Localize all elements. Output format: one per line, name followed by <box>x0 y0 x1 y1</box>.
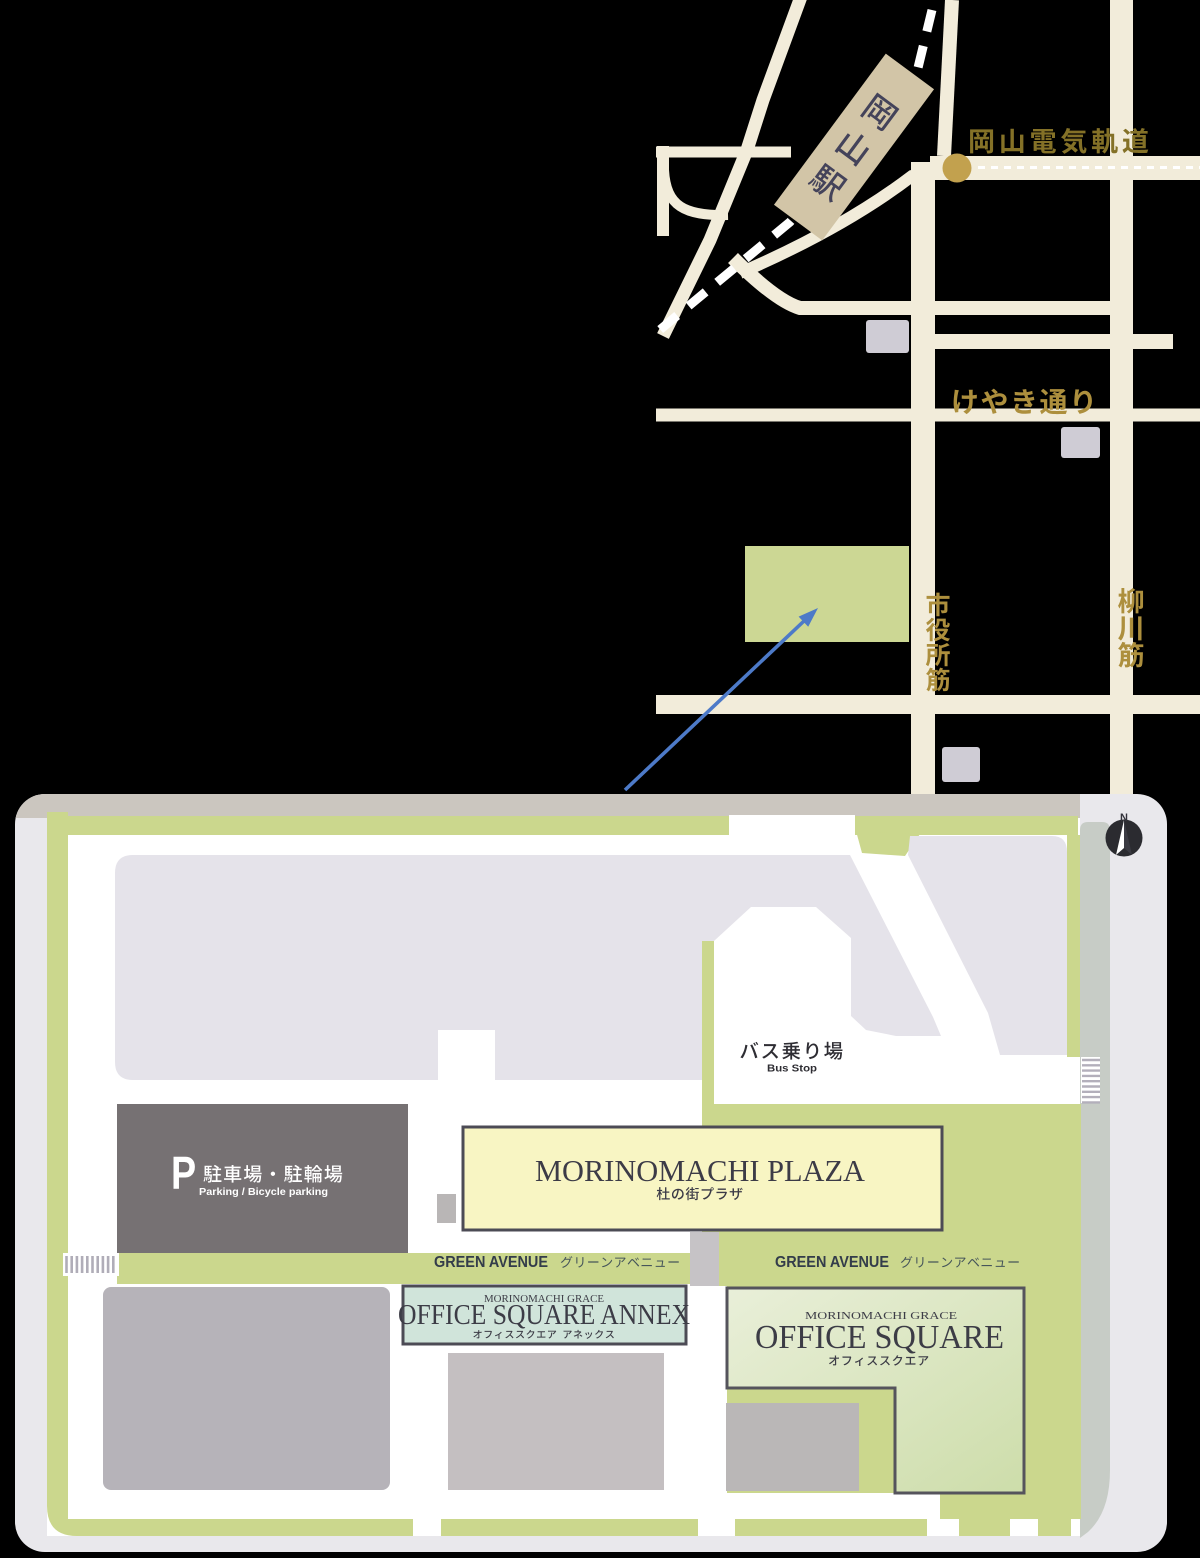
svg-text:N: N <box>1120 812 1128 824</box>
svg-text:OFFICE SQUARE ANNEX: OFFICE SQUARE ANNEX <box>398 1300 690 1331</box>
svg-text:P: P <box>171 1147 196 1198</box>
svg-text:Parking / Bicycle parking: Parking / Bicycle parking <box>199 1187 328 1198</box>
svg-text:OFFICE SQUARE: OFFICE SQUARE <box>755 1319 1004 1356</box>
svg-text:MORINOMACHI PLAZA: MORINOMACHI PLAZA <box>535 1153 866 1188</box>
svg-text:GREEN AVENUE: GREEN AVENUE <box>434 1254 548 1271</box>
svg-text:Bus Stop: Bus Stop <box>767 1064 817 1075</box>
svg-text:GREEN AVENUE: GREEN AVENUE <box>775 1254 889 1271</box>
